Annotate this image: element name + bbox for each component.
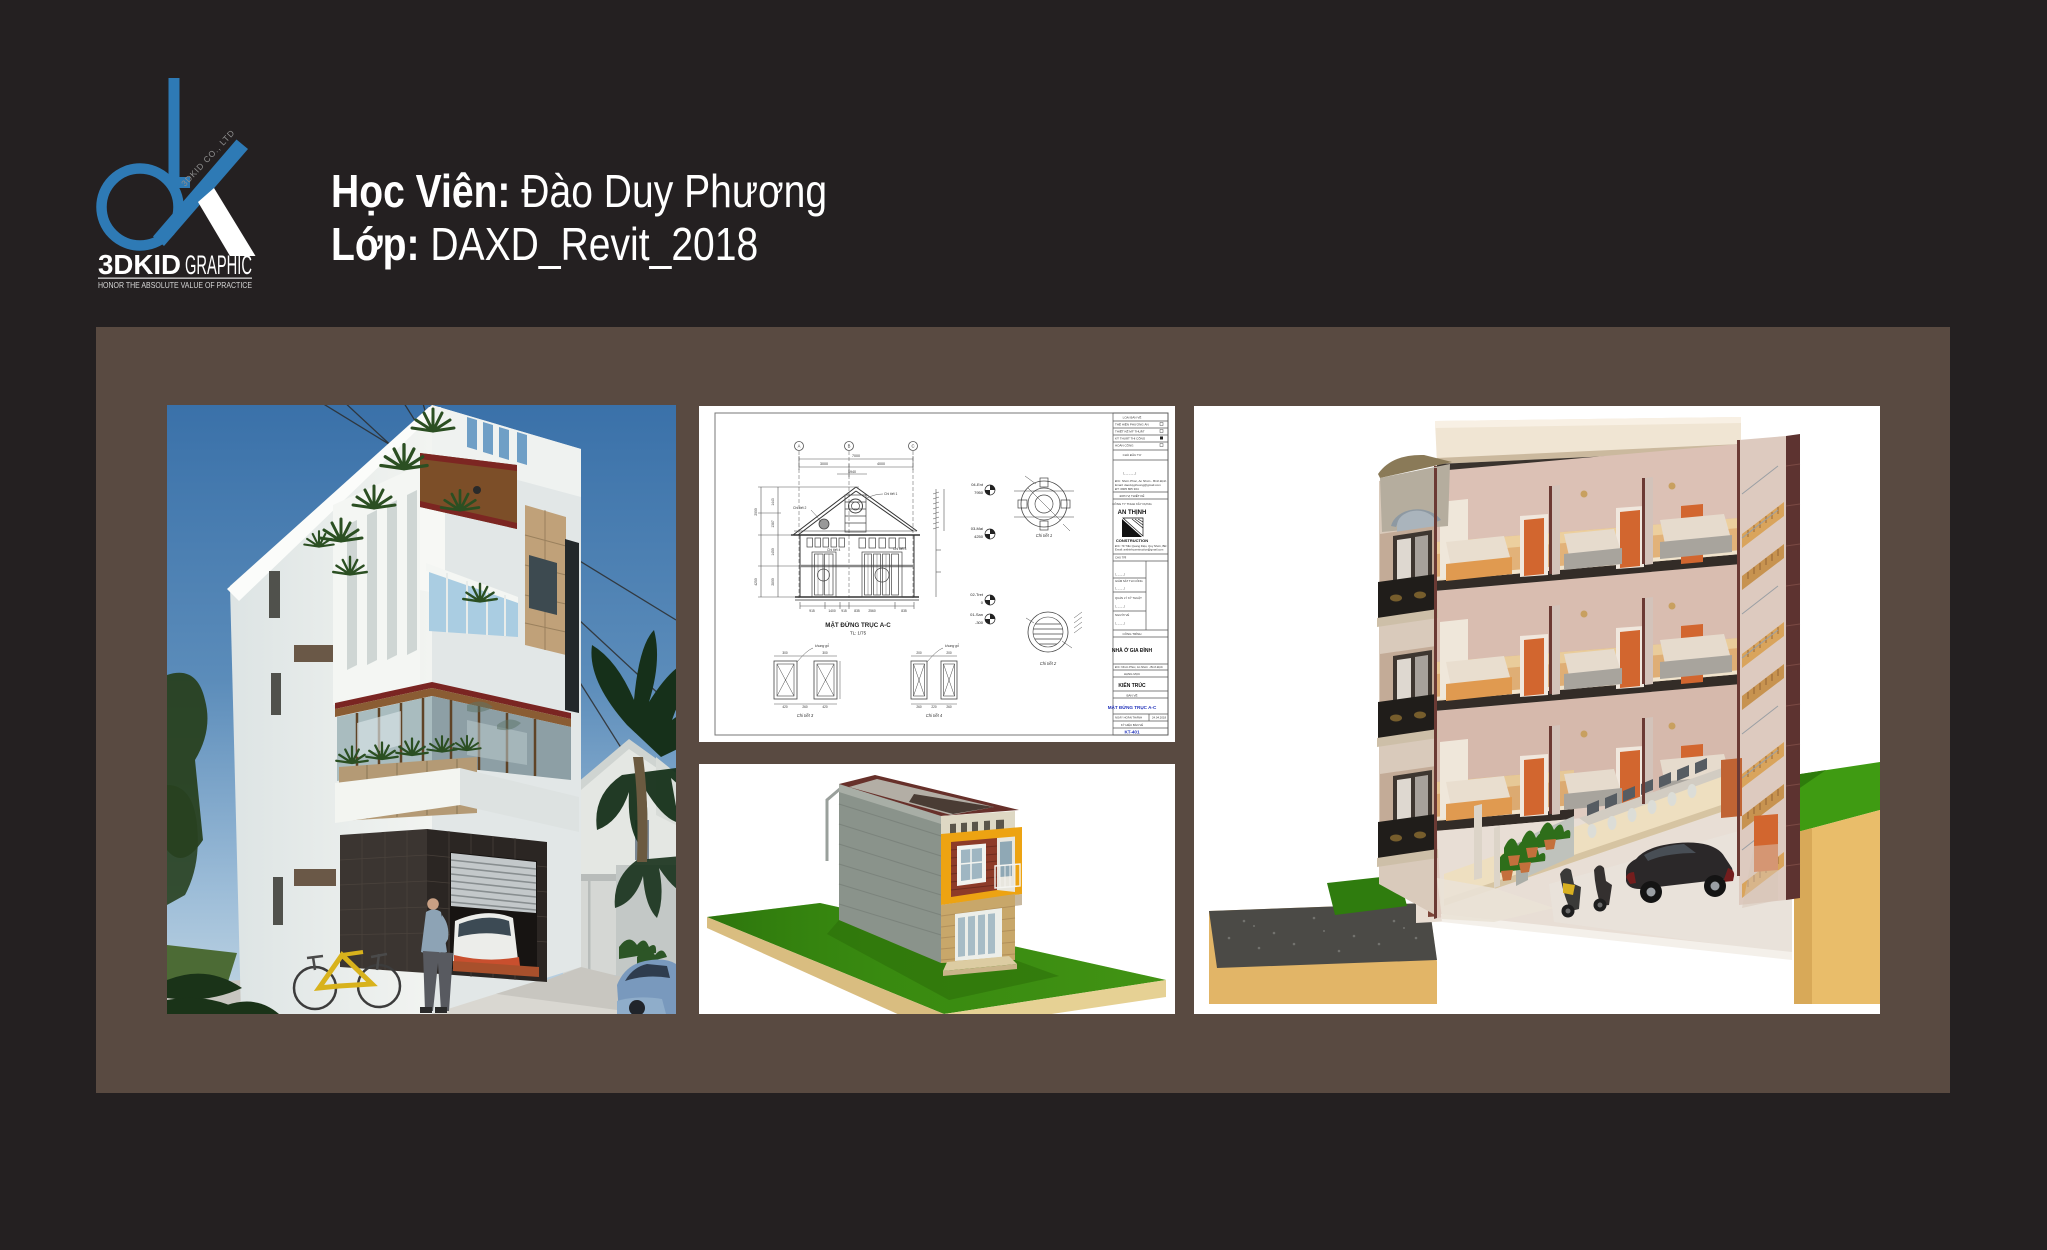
svg-text:4250: 4250 — [754, 578, 758, 586]
svg-text:835: 835 — [854, 609, 860, 613]
svg-text:7950: 7950 — [974, 490, 984, 495]
svg-text:|_ _ _ _|: |_ _ _ _| — [1115, 621, 1126, 625]
svg-text:THỂ HIỆN PHƯƠNG ÁN: THỂ HIỆN PHƯƠNG ÁN — [1115, 422, 1149, 427]
svg-text:835: 835 — [901, 609, 907, 613]
svg-text:260: 260 — [916, 705, 922, 709]
svg-text:|_ _ _ _ _|: |_ _ _ _ _| — [1123, 471, 1137, 475]
svg-text:1940: 1940 — [848, 470, 856, 474]
svg-text:2800: 2800 — [771, 578, 775, 586]
svg-text:HONOR THE ABSOLUTE VALUE OF PR: HONOR THE ABSOLUTE VALUE OF PRACTICE — [98, 280, 252, 290]
svg-text:04-Ent: 04-Ent — [971, 482, 984, 487]
svg-text:915: 915 — [841, 609, 847, 613]
svg-text:3000: 3000 — [820, 462, 828, 466]
svg-text:A: A — [798, 444, 801, 449]
svg-text:-300: -300 — [975, 620, 984, 625]
svg-text:HẠNG MỤC: HẠNG MỤC — [1124, 672, 1141, 676]
svg-text:|_ _ _ _|: |_ _ _ _| — [1115, 572, 1126, 576]
svg-text:1400: 1400 — [828, 609, 836, 613]
svg-text:CONSTRUCTION: CONSTRUCTION — [1116, 538, 1148, 543]
svg-text:1387: 1387 — [771, 520, 775, 528]
svg-text:NHÀ Ở GIA ĐÌNH: NHÀ Ở GIA ĐÌNH — [1112, 646, 1153, 654]
svg-text:300: 300 — [822, 651, 828, 655]
svg-text:HOÀN CÔNG: HOÀN CÔNG — [1115, 443, 1134, 448]
svg-text:BẢN VẼ: BẢN VẼ — [1126, 693, 1137, 698]
svg-text:200: 200 — [916, 651, 922, 655]
svg-text:CHỦ TRÌ: CHỦ TRÌ — [1115, 555, 1127, 560]
svg-text:915: 915 — [809, 609, 815, 613]
svg-text:CÔNG TRÌNH: CÔNG TRÌNH — [1123, 631, 1142, 636]
svg-text:NGÀY HOÀN THÀNH: NGÀY HOÀN THÀNH — [1115, 716, 1142, 720]
svg-text:2000: 2000 — [754, 508, 758, 516]
svg-text:2560: 2560 — [868, 609, 876, 613]
svg-text:|_ _ _ _|: |_ _ _ _| — [1115, 586, 1126, 590]
svg-text:Chi tiết 4: Chi tiết 4 — [926, 713, 943, 718]
svg-text:Chi tiết 1: Chi tiết 1 — [1036, 533, 1053, 538]
svg-text:02-Tret: 02-Tret — [970, 592, 984, 597]
svg-text:3DKID: 3DKID — [98, 249, 181, 280]
svg-text:Email: anthinhconstruction@gma: Email: anthinhconstruction@gmail.com — [1115, 548, 1164, 552]
svg-text:Chi tiết 2: Chi tiết 2 — [793, 506, 806, 510]
svg-text:MẶT ĐỨNG TRỤC A-C: MẶT ĐỨNG TRỤC A-C — [1108, 704, 1157, 710]
svg-text:300: 300 — [782, 651, 788, 655]
svg-text:7000: 7000 — [852, 454, 860, 458]
svg-text:Đ/C: Nhơn Phúc, An Nhơn - Bình: Đ/C: Nhơn Phúc, An Nhơn - Bình Định — [1115, 665, 1163, 669]
svg-text:KT-401: KT-401 — [1124, 730, 1140, 735]
svg-text:QUẢN LÝ KỸ THUẬT: QUẢN LÝ KỸ THUẬT — [1115, 595, 1142, 600]
svg-text:03-Mai: 03-Mai — [971, 526, 983, 531]
svg-text:4250: 4250 — [974, 534, 984, 539]
svg-text:Chi tiết 2: Chi tiết 2 — [1040, 661, 1057, 666]
svg-text:Chi tiết 3: Chi tiết 3 — [797, 713, 814, 718]
svg-text:260: 260 — [946, 705, 952, 709]
svg-text:Chi tiết 3: Chi tiết 3 — [893, 547, 906, 551]
svg-text:TL: 1/75: TL: 1/75 — [850, 631, 867, 636]
svg-text:NGƯỜI VẼ: NGƯỜI VẼ — [1115, 612, 1129, 617]
svg-text:KỸ THUẬT THI CÔNG: KỸ THUẬT THI CÔNG — [1115, 436, 1146, 441]
svg-text:KIẾN TRÚC: KIẾN TRÚC — [1118, 682, 1146, 689]
svg-text:Chi tiết 1: Chi tiết 1 — [884, 492, 897, 496]
svg-text:24.04.2018: 24.04.2018 — [1152, 716, 1166, 720]
svg-text:220: 220 — [931, 705, 937, 709]
svg-text:|_ _ _ _|: |_ _ _ _| — [1115, 604, 1126, 608]
svg-text:1450: 1450 — [771, 548, 775, 556]
svg-text:420: 420 — [782, 705, 788, 709]
svg-text:ĐT: 0905 805 304: ĐT: 0905 805 304 — [1115, 487, 1139, 491]
svg-text:01-San: 01-San — [970, 612, 983, 617]
svg-text:260: 260 — [802, 705, 808, 709]
svg-text:khung gỗ: khung gỗ — [815, 643, 829, 648]
svg-text:ĐƠN VỊ THIẾT KẾ: ĐƠN VỊ THIẾT KẾ — [1120, 493, 1145, 498]
svg-text:Chi tiết 4: Chi tiết 4 — [827, 548, 840, 552]
svg-text:MẶT ĐỨNG TRỤC A-C: MẶT ĐỨNG TRỤC A-C — [825, 622, 891, 629]
svg-text:CÔNG TY TNHH XÂY DỰNG: CÔNG TY TNHH XÂY DỰNG — [1112, 501, 1152, 506]
svg-text:KÝ HIỆU BẢN VẼ: KÝ HIỆU BẢN VẼ — [1121, 722, 1143, 727]
svg-text:khung gỗ: khung gỗ — [945, 643, 959, 648]
svg-text:B: B — [848, 444, 851, 449]
svg-text:LOẠI BẢN VẼ: LOẠI BẢN VẼ — [1123, 415, 1142, 420]
svg-text:AN THỊNH: AN THỊNH — [1118, 510, 1147, 516]
svg-text:CHỦ ĐẦU TƯ: CHỦ ĐẦU TƯ — [1123, 452, 1142, 457]
svg-text:420: 420 — [822, 705, 828, 709]
svg-text:GRAPHIC: GRAPHIC — [185, 250, 252, 280]
svg-text:GIÁM SÁT THI CÔNG: GIÁM SÁT THI CÔNG — [1115, 578, 1143, 583]
svg-text:200: 200 — [946, 651, 952, 655]
svg-text:4000: 4000 — [877, 462, 885, 466]
svg-text:C: C — [911, 444, 914, 449]
svg-text:THIẾT KẾ MỸ THUẬT: THIẾT KẾ MỸ THUẬT — [1115, 429, 1145, 434]
svg-text:1443: 1443 — [771, 498, 775, 506]
